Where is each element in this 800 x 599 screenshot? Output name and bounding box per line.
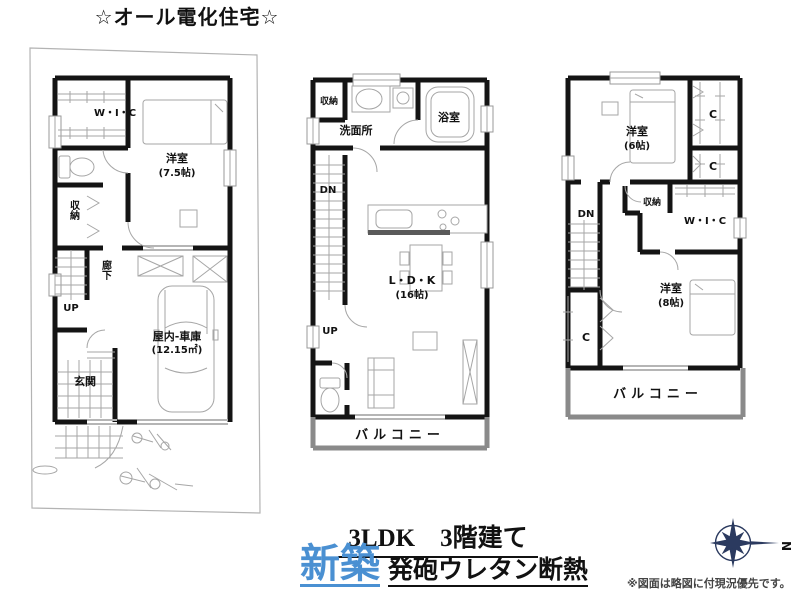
- label-dn-2f: DN: [320, 185, 337, 196]
- stairs: [313, 155, 345, 300]
- garage-racks: [138, 256, 227, 282]
- label-bath: 浴室: [438, 110, 460, 124]
- floor3-plan: 洋室 (6帖) C C 収納 W・I・C DN 洋室 (8帖) C バルコニー: [555, 68, 755, 428]
- label-c2: C: [709, 160, 717, 173]
- label-up-1f: UP: [63, 303, 78, 314]
- label-wic-1f: W・I・C: [94, 108, 136, 119]
- tv-board: [463, 340, 477, 404]
- label-ldk: L・D・K: [389, 274, 436, 287]
- label-up-2f: UP: [322, 326, 337, 337]
- label-dn-3f: DN: [578, 209, 595, 220]
- label-room-size-1f: (7.5帖): [159, 166, 196, 179]
- floorplan-page: ☆オール電化住宅☆: [0, 0, 800, 599]
- label-room2-size-3f: (8帖): [658, 296, 684, 309]
- kitchen-counter: [368, 205, 487, 235]
- label-room-1f: 洋室: [166, 151, 188, 165]
- toilet-icon: [320, 378, 340, 412]
- label-garage-size: (12.15㎡): [152, 343, 203, 356]
- sales-copy: 新築 発砲ウレタン断熱: [300, 544, 588, 587]
- side-table: [180, 210, 197, 227]
- floor2-plan: 収納 洗面所 浴室 DN L・D・K (16帖) UP バルコニー: [290, 70, 500, 460]
- label-hall-1f: 廊下: [100, 259, 112, 281]
- page-title: ☆オール電化住宅☆: [72, 1, 302, 30]
- bicycle-icons: [120, 430, 193, 490]
- garage-shutter: [137, 420, 228, 424]
- label-closet-3f: 収納: [643, 196, 661, 208]
- label-room1-3f: 洋室: [626, 124, 648, 138]
- label-room2-3f: 洋室: [660, 281, 682, 295]
- label-closet-1f: 収納: [68, 200, 80, 221]
- label-room1-size-3f: (6帖): [624, 139, 650, 152]
- label-garage: 屋内-車庫: [153, 329, 202, 343]
- disclaimer-note: ※図面は略図に付現況優先です。: [627, 575, 791, 591]
- bed-icon: [143, 100, 227, 144]
- label-washroom: 洗面所: [340, 123, 373, 137]
- label-wic-3f: W・I・C: [684, 216, 726, 227]
- label-c1: C: [709, 108, 717, 121]
- approach-tile: [33, 426, 123, 474]
- washbasin-icon: [352, 86, 413, 112]
- label-ldk-size: (16帖): [395, 288, 428, 301]
- insulation-text: 発砲ウレタン断熱: [388, 555, 588, 587]
- label-closet-2f: 収納: [320, 95, 338, 107]
- label-balcony-3f: バルコニー: [613, 387, 703, 402]
- label-entrance: 玄関: [74, 374, 96, 388]
- compass-icon: N: [695, 505, 800, 575]
- label-c3: C: [582, 331, 590, 344]
- label-balcony-2f: バルコニー: [355, 428, 445, 443]
- new-build-text: 新築: [300, 544, 380, 587]
- closet-door-marks: [87, 196, 99, 238]
- toilet-icon: [59, 156, 94, 178]
- floor1-plan: W・I・C 洋室 (7.5帖) 収納 廊下 UP 屋内-車庫 (12.15㎡) …: [25, 38, 275, 518]
- compass-north-label: N: [779, 541, 793, 551]
- sofa-icon: [368, 332, 437, 408]
- stairs: [568, 220, 600, 290]
